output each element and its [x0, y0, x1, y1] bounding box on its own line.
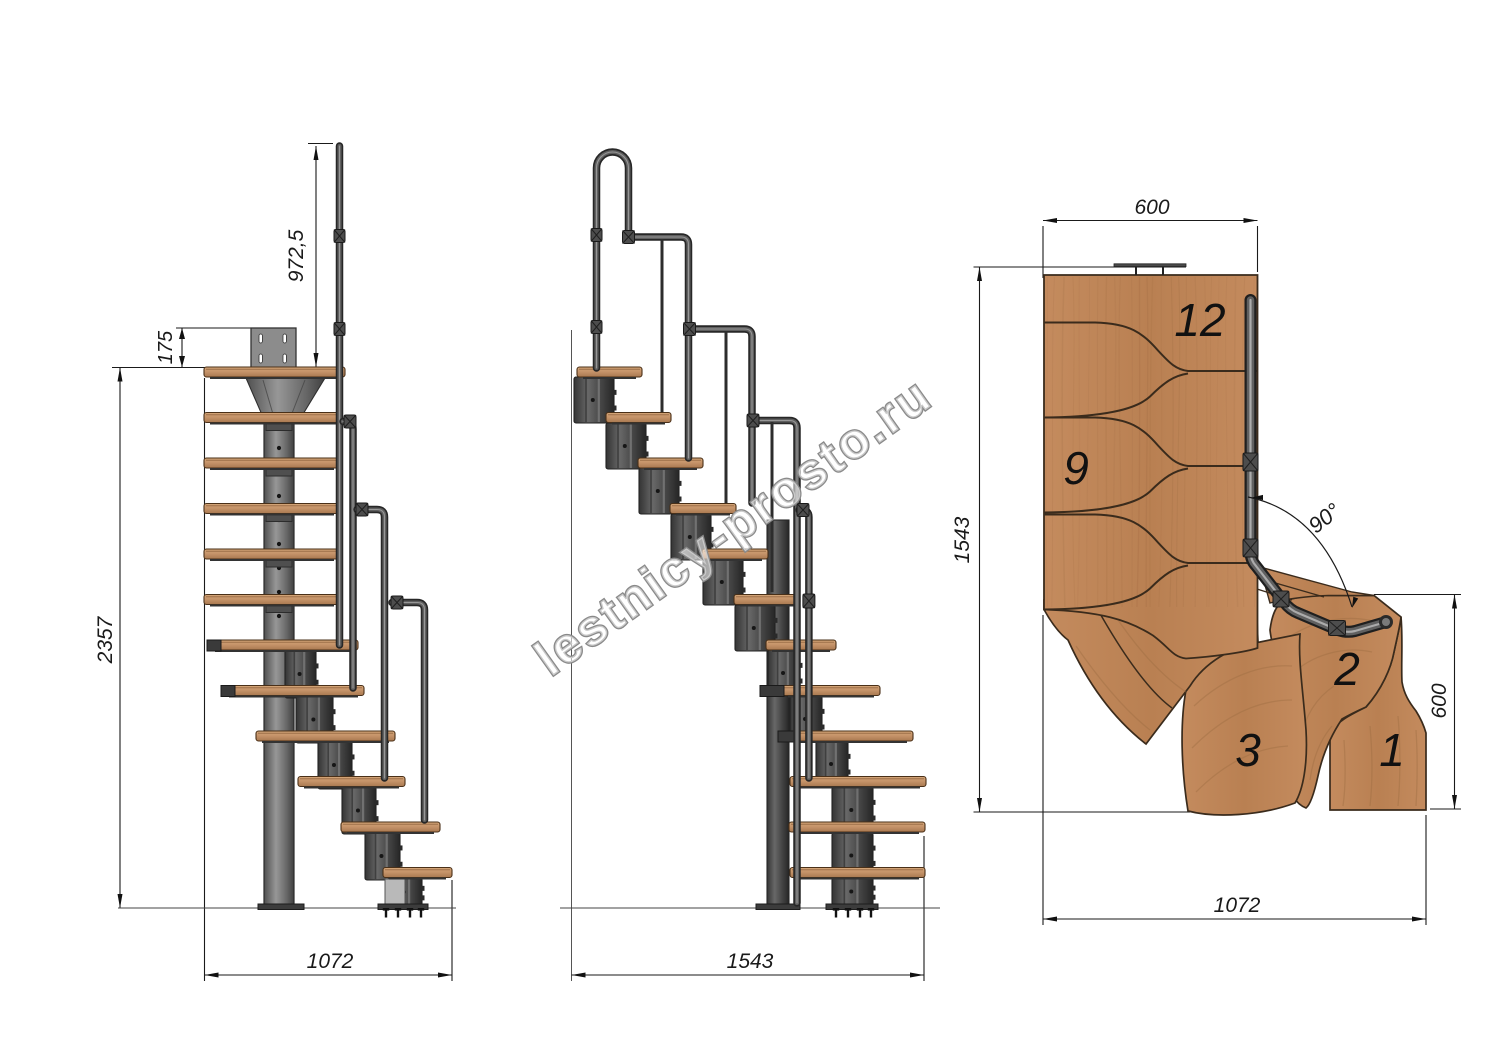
svg-text:1072: 1072	[307, 950, 354, 973]
svg-text:600: 600	[1428, 683, 1451, 718]
svg-text:2357: 2357	[94, 615, 117, 664]
svg-text:9: 9	[1063, 442, 1089, 494]
svg-text:1072: 1072	[1214, 894, 1261, 917]
svg-text:3: 3	[1235, 724, 1261, 776]
svg-text:2: 2	[1333, 643, 1360, 695]
svg-text:600: 600	[1134, 196, 1169, 219]
svg-text:12: 12	[1174, 294, 1225, 346]
svg-text:972,5: 972,5	[285, 229, 308, 282]
svg-text:1: 1	[1379, 724, 1405, 776]
svg-text:175: 175	[155, 330, 177, 364]
svg-text:1543: 1543	[951, 516, 974, 563]
svg-text:1543: 1543	[727, 950, 774, 973]
